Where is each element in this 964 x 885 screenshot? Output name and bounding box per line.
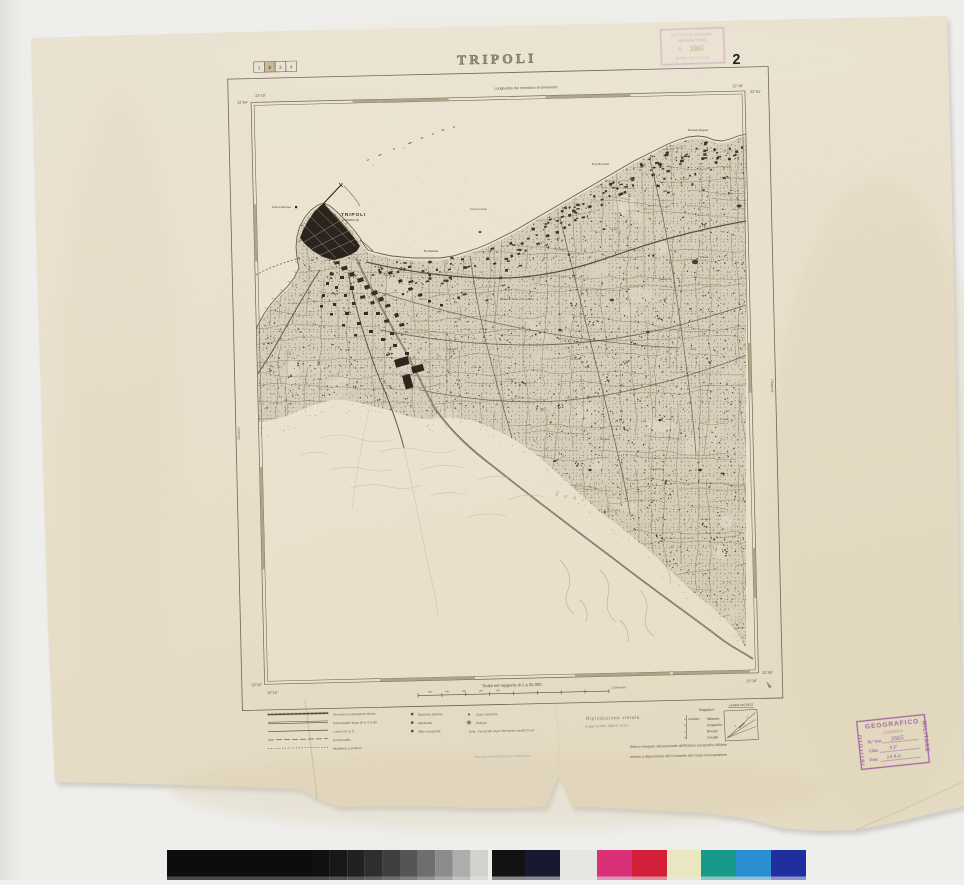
svg-text:3365: 3365 — [688, 45, 704, 54]
svg-text:9 F: 9 F — [889, 745, 898, 752]
svg-text:Pos.: Pos. — [869, 757, 878, 763]
svg-text:N.: N. — [678, 47, 683, 52]
svg-text:Clas.: Clas. — [869, 748, 879, 754]
